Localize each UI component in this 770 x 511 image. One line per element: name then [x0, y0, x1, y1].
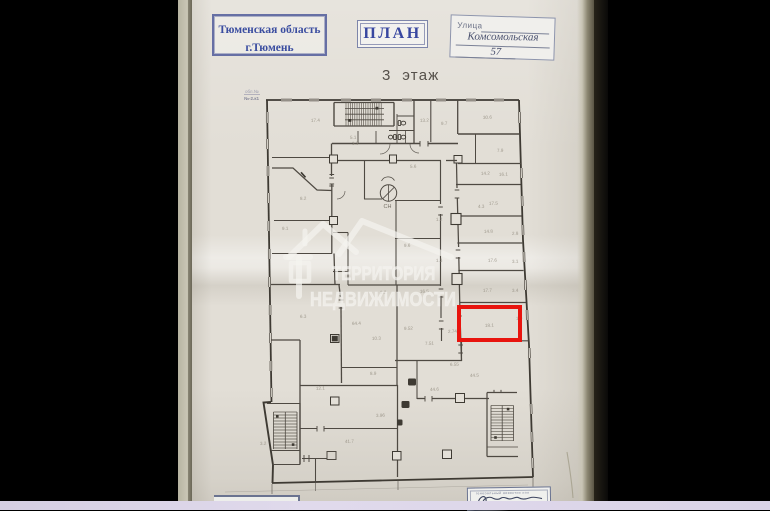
- svg-text:17.7: 17.7: [483, 288, 493, 293]
- svg-text:9.7: 9.7: [441, 121, 448, 126]
- svg-text:7.9: 7.9: [497, 148, 504, 153]
- svg-text:30.6: 30.6: [483, 115, 493, 120]
- svg-text:3.1: 3.1: [512, 259, 519, 264]
- svg-text:9.52: 9.52: [404, 326, 414, 331]
- svg-text:НЕДВИЖИМОСТИ: НЕДВИЖИМОСТИ: [310, 288, 456, 311]
- svg-text:6.3: 6.3: [300, 314, 307, 319]
- svg-text:8.2: 8.2: [300, 196, 307, 201]
- svg-text:3.4: 3.4: [512, 288, 519, 293]
- svg-text:3.3: 3.3: [352, 141, 359, 146]
- svg-text:СН: СН: [384, 204, 392, 210]
- svg-text:41.7: 41.7: [345, 439, 355, 444]
- svg-text:16.1: 16.1: [499, 172, 509, 177]
- svg-text:ТЕРРИТОРИЯ: ТЕРРИТОРИЯ: [332, 262, 435, 284]
- svg-text:17.4: 17.4: [311, 118, 321, 123]
- svg-text:13.2: 13.2: [420, 118, 430, 123]
- svg-text:обл.№: обл.№: [245, 89, 259, 94]
- svg-text:2.8: 2.8: [512, 231, 519, 236]
- svg-text:10.3: 10.3: [372, 336, 382, 341]
- svg-text:4.3: 4.3: [478, 204, 485, 209]
- svg-text:5.6: 5.6: [410, 164, 417, 169]
- svg-text:64.4: 64.4: [352, 321, 362, 326]
- svg-text:14.2: 14.2: [481, 171, 491, 176]
- svg-text:17.5: 17.5: [489, 201, 499, 206]
- svg-text:9.1: 9.1: [282, 226, 289, 231]
- svg-text:3.96: 3.96: [376, 413, 386, 418]
- svg-text:44.5: 44.5: [470, 373, 480, 378]
- svg-text:№-2.к1: №-2.к1: [244, 96, 260, 101]
- svg-text:1.2: 1.2: [436, 217, 443, 222]
- svg-text:7.51: 7.51: [425, 341, 435, 346]
- svg-text:1.3: 1.3: [436, 258, 443, 263]
- svg-text:6.55: 6.55: [450, 362, 460, 367]
- svg-text:3.2: 3.2: [260, 441, 267, 446]
- svg-text:44.6: 44.6: [430, 387, 440, 392]
- svg-text:17.6: 17.6: [488, 258, 498, 263]
- svg-text:2.74: 2.74: [448, 329, 458, 334]
- svg-text:12.1: 12.1: [316, 386, 326, 391]
- svg-text:5.1: 5.1: [350, 135, 357, 140]
- svg-text:14.8: 14.8: [484, 229, 494, 234]
- svg-text:8.9: 8.9: [370, 371, 377, 376]
